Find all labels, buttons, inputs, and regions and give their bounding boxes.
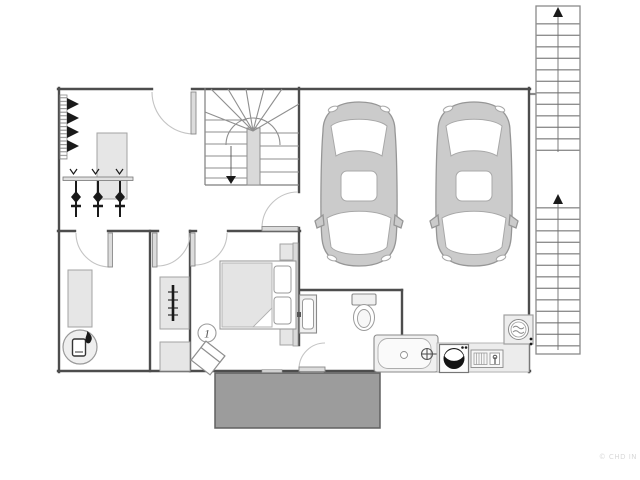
armchair	[191, 341, 225, 375]
pillow	[274, 297, 291, 324]
bathtub-icon	[374, 335, 438, 372]
gas-boiler-icon	[63, 330, 97, 364]
bathroom	[297, 294, 438, 372]
toilet-icon	[352, 294, 376, 331]
mirror	[509, 215, 518, 228]
roof-window	[456, 171, 492, 201]
winder-staircase	[205, 88, 299, 185]
external-staircase	[530, 6, 580, 354]
windshield	[327, 211, 391, 254]
nightstand	[280, 329, 293, 345]
room-number: 1	[204, 327, 210, 341]
door-storage-left	[76, 233, 113, 267]
mirror	[315, 215, 324, 228]
roof-window	[341, 171, 377, 201]
wardrobe	[160, 277, 189, 329]
storage-room-left	[63, 270, 97, 364]
terrace	[215, 373, 380, 428]
door-storage-middle	[153, 233, 191, 267]
mirror	[430, 215, 439, 228]
floor-plan-drawing: 1	[0, 0, 640, 480]
pillow	[274, 266, 291, 293]
room-number-badge: 1	[198, 324, 216, 342]
threshold	[262, 370, 282, 373]
sideboard	[97, 133, 127, 199]
car-icon	[315, 102, 403, 266]
laundry	[437, 315, 533, 373]
nightstand	[280, 244, 293, 260]
car-icon	[430, 102, 518, 266]
laundry-sink-icon	[471, 350, 503, 368]
rear-window	[446, 119, 502, 156]
stair-fan-treads	[205, 89, 299, 131]
washbasin-icon	[297, 295, 317, 333]
windshield	[442, 211, 506, 254]
door-garage	[262, 192, 298, 231]
drain	[401, 352, 408, 359]
door-terrace	[262, 343, 325, 373]
water-heater-icon	[504, 315, 533, 345]
watermark: © CHD IN	[599, 453, 637, 461]
cabinet	[160, 342, 190, 371]
down-arrow-icon	[226, 176, 236, 184]
stair-spine	[247, 128, 260, 185]
mirror	[394, 215, 403, 228]
rear-window	[331, 119, 387, 156]
storage-shelf	[68, 270, 92, 327]
garage	[315, 102, 518, 266]
tap	[297, 312, 301, 317]
double-bed	[220, 261, 296, 329]
shoe-rack-arrows	[67, 98, 79, 152]
entry-door	[152, 92, 196, 134]
floor-plan: 1	[0, 0, 640, 480]
shoe-rack-icon	[60, 95, 67, 159]
hanger	[71, 181, 81, 217]
washing-machine-icon	[440, 345, 469, 373]
storage-room-middle	[160, 277, 190, 371]
hallway	[60, 95, 133, 217]
